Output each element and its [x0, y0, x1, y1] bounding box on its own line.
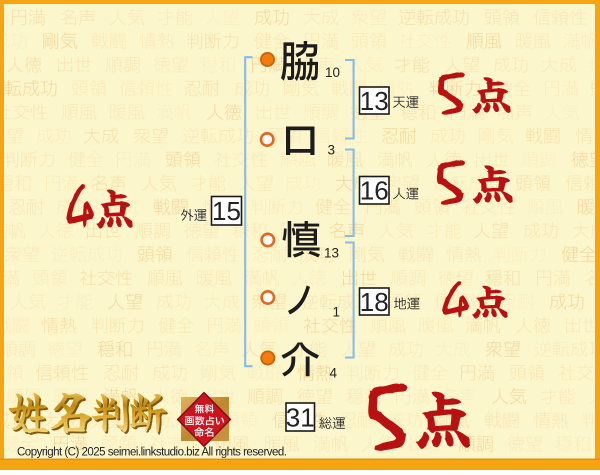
- svg-text:13: 13: [360, 86, 389, 116]
- svg-text:1: 1: [333, 305, 341, 320]
- svg-text:16: 16: [360, 176, 389, 206]
- svg-text:15: 15: [212, 196, 241, 226]
- svg-text:Copyright (C) 2025 seimei.link: Copyright (C) 2025 seimei.linkstudio.biz…: [17, 447, 287, 459]
- svg-text:4: 4: [330, 366, 338, 381]
- svg-text:10: 10: [325, 65, 340, 80]
- svg-text:18: 18: [360, 287, 389, 317]
- svg-text:31: 31: [286, 402, 315, 432]
- svg-text:3: 3: [328, 143, 336, 158]
- svg-text:13: 13: [324, 246, 339, 261]
